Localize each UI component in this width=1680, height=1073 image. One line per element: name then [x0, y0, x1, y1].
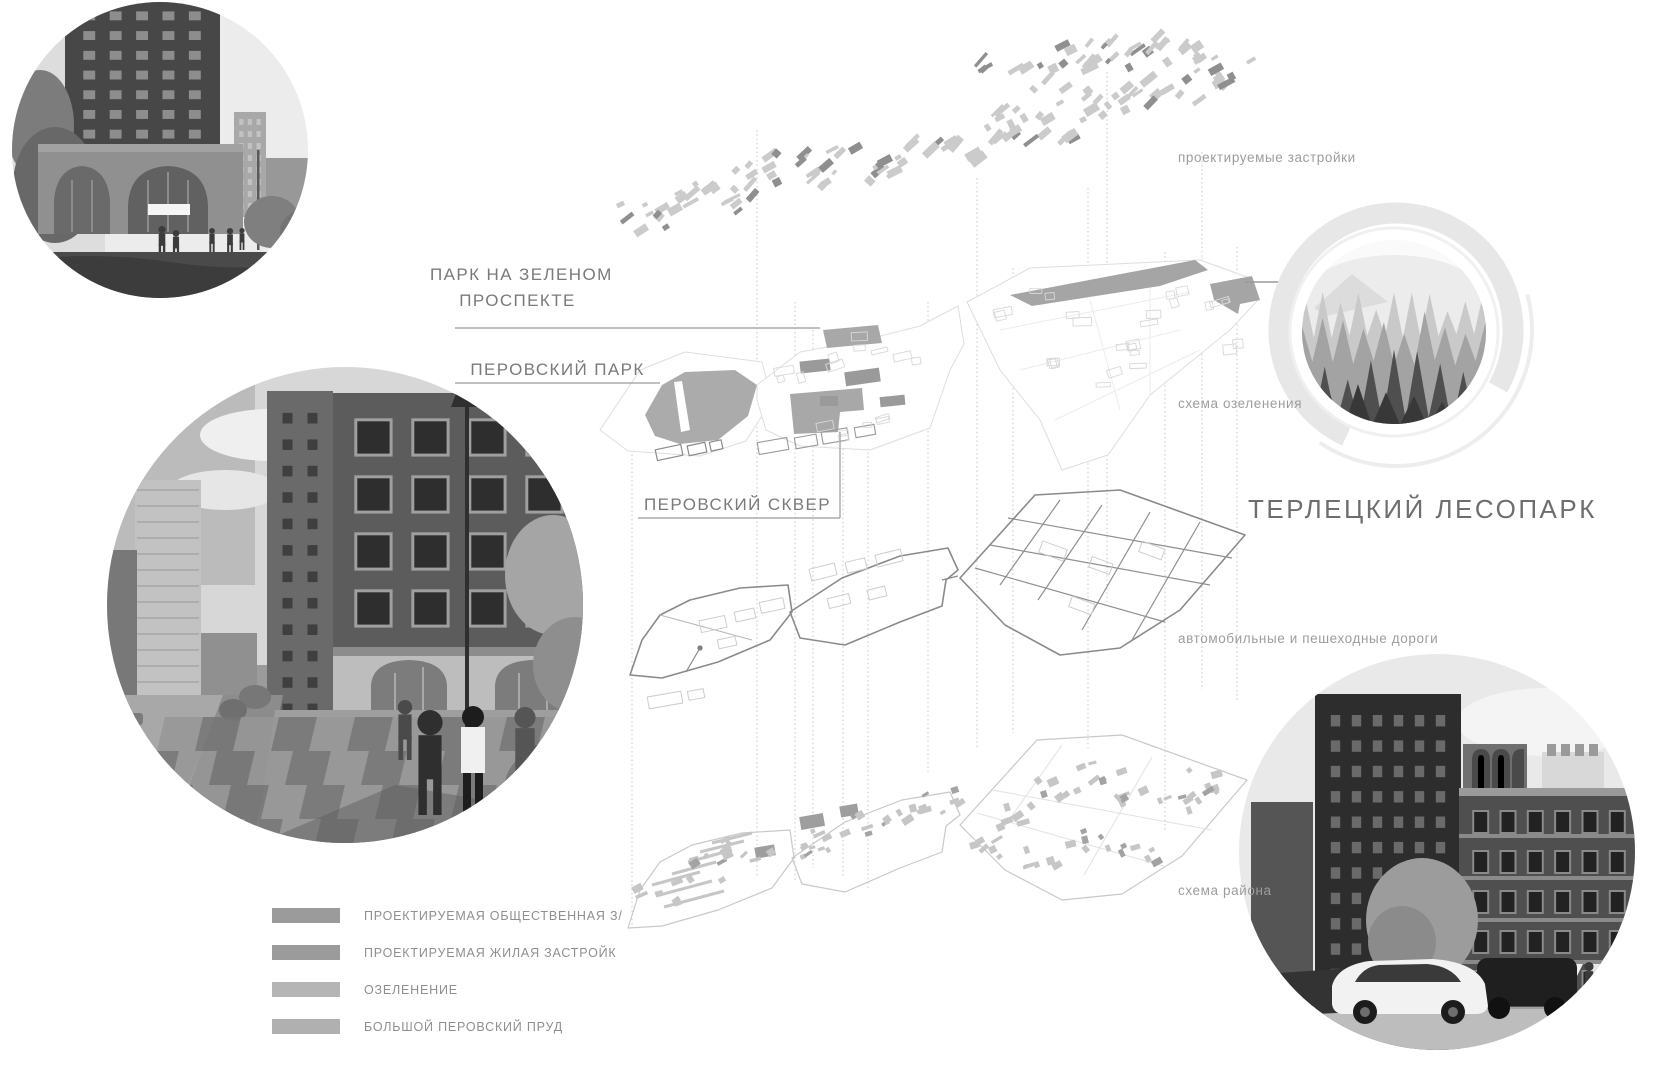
legend-swatch-1	[272, 945, 340, 960]
legend-swatch-0	[272, 908, 340, 923]
photo-render-street-view	[105, 365, 585, 845]
legend-label: ОЗЕЛЕНЕНИЕ	[364, 983, 458, 997]
legend-row: ПРОЕКТИРУЕМАЯ ОБЩЕСТВЕННАЯ З/	[272, 908, 623, 923]
legend: ПРОЕКТИРУЕМАЯ ОБЩЕСТВЕННАЯ З/ ПРОЕКТИРУЕ…	[272, 908, 623, 1056]
legend-row: ПРОЕКТИРУЕМАЯ ЖИЛАЯ ЗАСТРОЙК	[272, 945, 623, 960]
legend-row: БОЛЬШОЙ ПЕРОВСКИЙ ПРУД	[272, 1019, 623, 1034]
photo-render-arch-pavilion	[10, 0, 310, 300]
masterplan-board: ПАРК НА ЗЕЛЕНОМ ПРОСПЕКТЕ ПЕРОВСКИЙ ПАРК…	[0, 0, 1680, 1073]
legend-row: ОЗЕЛЕНЕНИЕ	[272, 982, 623, 997]
photo-render-district-street	[1237, 652, 1637, 1052]
forest-circle-graphic	[1256, 190, 1541, 475]
label-park-on-green-prospekt-line1: ПАРК НА ЗЕЛЕНОМ	[430, 262, 605, 288]
label-perovsky-square: ПЕРОВСКИЙ СКВЕР	[640, 492, 835, 518]
layer-greenery-scheme	[600, 260, 1303, 612]
title-terletsky-lesopark: ТЕРЛЕЦКИЙ ЛЕСОПАРК	[1248, 494, 1558, 525]
legend-label: ПРОЕКТИРУЕМАЯ ЖИЛАЯ ЗАСТРОЙК	[364, 946, 616, 960]
legend-swatch-3	[272, 1019, 340, 1034]
legend-label: ПРОЕКТИРУЕМАЯ ОБЩЕСТВЕННАЯ З/	[364, 909, 623, 923]
caption-roads: автомобильные и пешеходные дороги	[1178, 631, 1438, 646]
legend-label: БОЛЬШОЙ ПЕРОВСКИЙ ПРУД	[364, 1020, 563, 1034]
legend-swatch-2	[272, 982, 340, 997]
caption-district-scheme: схема района	[1178, 883, 1272, 898]
label-perovsky-park: ПЕРОВСКИЙ ПАРК	[455, 357, 660, 383]
layer-district-scheme	[628, 735, 1247, 928]
layer-roads	[630, 490, 1245, 709]
layer-projected-buildings	[616, 28, 1256, 237]
caption-projected-buildings: проектируемые застройки	[1178, 150, 1356, 165]
label-park-on-green-prospekt-line2: ПРОСПЕКТЕ	[430, 288, 605, 314]
caption-greenery-scheme: схема озеленения	[1178, 396, 1302, 411]
label-park-on-green-prospekt: ПАРК НА ЗЕЛЕНОМ ПРОСПЕКТЕ	[430, 262, 605, 314]
district-buildings-texture	[631, 761, 1223, 907]
